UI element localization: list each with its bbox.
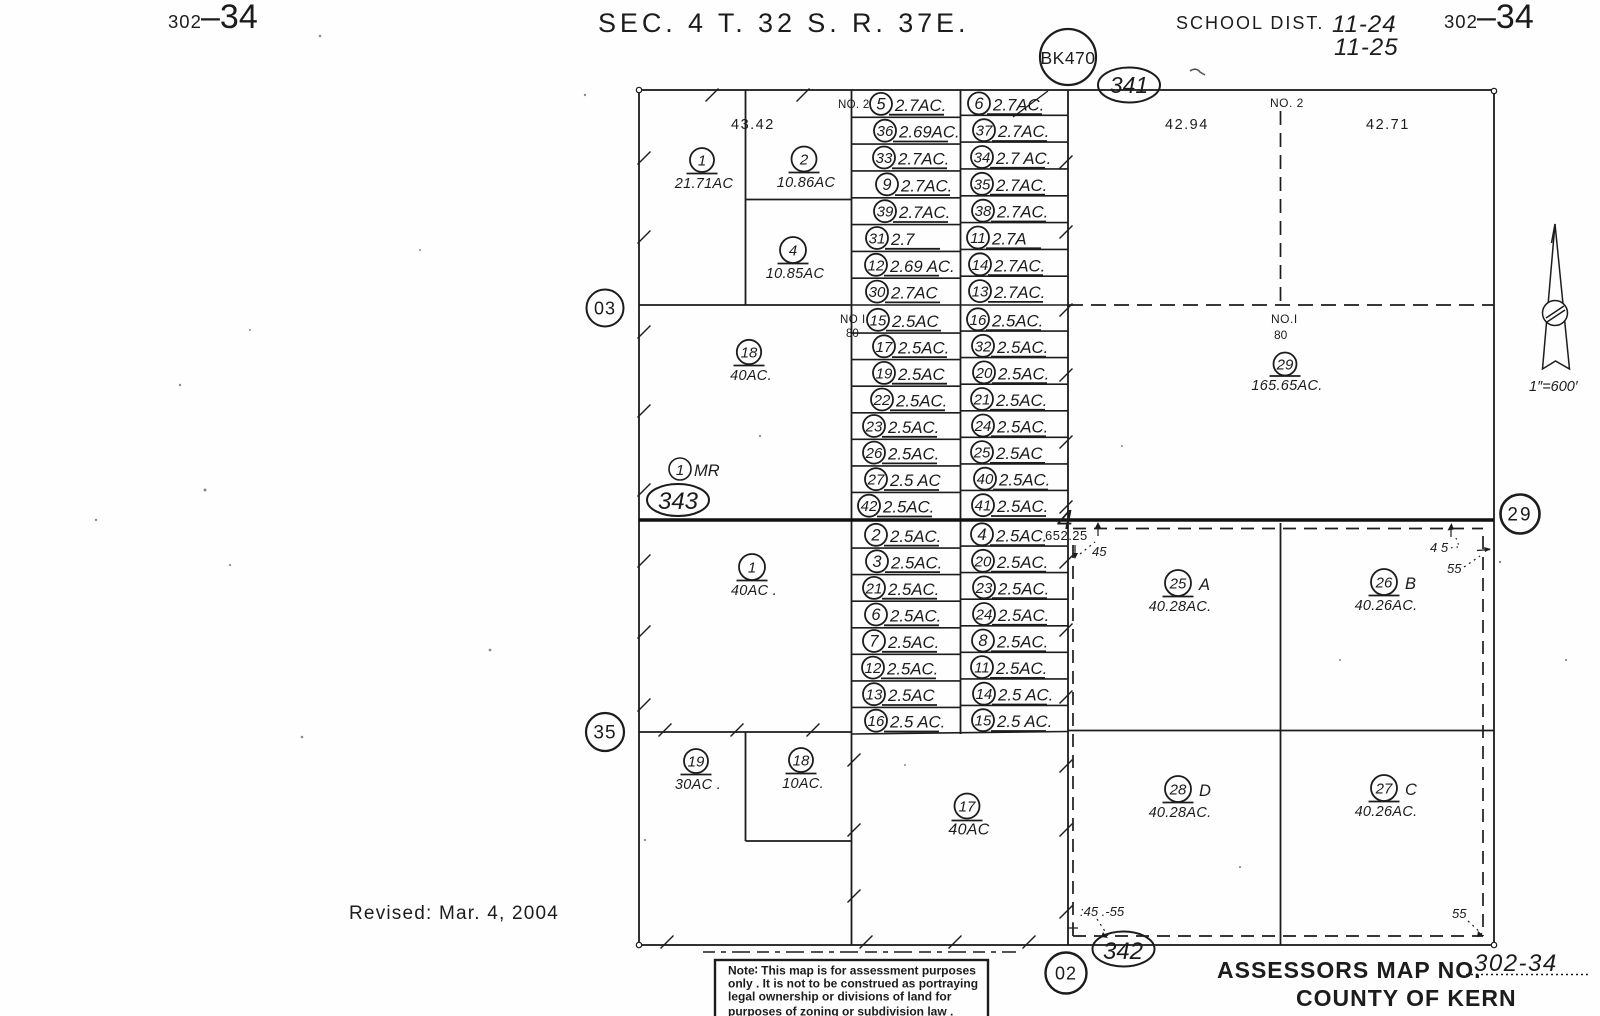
svg-text:2.5AC.: 2.5AC. bbox=[997, 364, 1049, 383]
svg-text:2.5AC.: 2.5AC. bbox=[882, 498, 934, 517]
svg-text:26: 26 bbox=[1375, 575, 1393, 592]
svg-text:35: 35 bbox=[974, 176, 991, 193]
svg-text:2.5AC.: 2.5AC. bbox=[996, 338, 1048, 357]
svg-text:2.7AC.: 2.7AC. bbox=[894, 96, 946, 115]
svg-text:4: 4 bbox=[977, 526, 986, 544]
svg-text:only . It is not to be constru: only . It is not to be construed as port… bbox=[728, 977, 978, 991]
svg-text:2.5AC.: 2.5AC. bbox=[996, 497, 1048, 516]
svg-text:4: 4 bbox=[789, 243, 797, 260]
svg-text:2.5AC.: 2.5AC. bbox=[887, 418, 939, 437]
svg-text:6: 6 bbox=[974, 95, 984, 113]
svg-text:03: 03 bbox=[594, 299, 616, 319]
svg-text:2.7AC.: 2.7AC. bbox=[995, 176, 1047, 195]
svg-text:42.71: 42.71 bbox=[1366, 117, 1410, 133]
svg-text:2.5AC.: 2.5AC. bbox=[995, 659, 1047, 678]
svg-text:2.5AC.: 2.5AC. bbox=[887, 580, 939, 599]
svg-text:43.42: 43.42 bbox=[731, 117, 775, 133]
svg-text:purposes of zoning or subdivis: purposes of zoning or subdivision law . bbox=[728, 1005, 953, 1016]
svg-text:1: 1 bbox=[698, 153, 706, 170]
svg-text:2.7A: 2.7A bbox=[991, 230, 1027, 249]
svg-text:12: 12 bbox=[865, 660, 882, 677]
svg-text:29: 29 bbox=[1276, 357, 1294, 374]
svg-text:B: B bbox=[1405, 575, 1416, 593]
svg-text:11-25: 11-25 bbox=[1334, 34, 1399, 61]
svg-text:9: 9 bbox=[882, 176, 891, 194]
svg-text:27: 27 bbox=[867, 472, 885, 489]
svg-text:341: 341 bbox=[1110, 72, 1148, 98]
svg-text:14: 14 bbox=[972, 257, 989, 274]
svg-text:2.5AC.: 2.5AC. bbox=[887, 633, 939, 652]
svg-text:15: 15 bbox=[870, 312, 887, 329]
svg-text:2: 2 bbox=[799, 152, 809, 169]
svg-text:42.94: 42.94 bbox=[1165, 117, 1209, 133]
svg-text:12: 12 bbox=[868, 257, 885, 274]
svg-text::45 .-55: :45 .-55 bbox=[1080, 904, 1125, 919]
svg-text:2.5AC: 2.5AC bbox=[891, 312, 940, 331]
svg-text:3: 3 bbox=[872, 553, 882, 571]
svg-text:D: D bbox=[1199, 782, 1211, 800]
svg-text:343: 343 bbox=[658, 488, 699, 515]
svg-text:40.26AC.: 40.26AC. bbox=[1355, 598, 1418, 614]
svg-text:2.5AC.: 2.5AC. bbox=[996, 553, 1048, 572]
svg-text:18: 18 bbox=[793, 753, 810, 770]
svg-text:55: 55 bbox=[1447, 561, 1462, 576]
svg-text:302: 302 bbox=[168, 11, 202, 32]
svg-text:25: 25 bbox=[973, 445, 991, 462]
svg-text:2.69 AC.: 2.69 AC. bbox=[889, 257, 955, 276]
svg-text:16: 16 bbox=[970, 312, 987, 329]
svg-text:30: 30 bbox=[869, 284, 886, 301]
svg-text:33: 33 bbox=[876, 150, 893, 167]
svg-text:45: 45 bbox=[1092, 544, 1107, 559]
svg-text:2.5AC: 2.5AC bbox=[995, 444, 1044, 463]
svg-text:23: 23 bbox=[975, 580, 993, 597]
svg-text:37: 37 bbox=[976, 123, 993, 140]
svg-text:13: 13 bbox=[972, 284, 989, 301]
svg-text:2.5 AC.: 2.5 AC. bbox=[996, 712, 1052, 731]
svg-text:32: 32 bbox=[975, 338, 992, 355]
svg-text:22: 22 bbox=[873, 392, 891, 409]
svg-text:40: 40 bbox=[977, 471, 994, 488]
svg-text:34: 34 bbox=[974, 150, 991, 167]
svg-text:8: 8 bbox=[978, 632, 988, 650]
svg-text:2.5AC.: 2.5AC. bbox=[995, 526, 1047, 545]
svg-text:39: 39 bbox=[877, 204, 894, 221]
svg-text:41: 41 bbox=[975, 498, 992, 515]
svg-text:28: 28 bbox=[1169, 782, 1187, 799]
svg-text:15: 15 bbox=[975, 713, 992, 730]
svg-text:2.5AC.: 2.5AC. bbox=[887, 445, 939, 464]
svg-text:80: 80 bbox=[846, 328, 859, 340]
svg-text:14: 14 bbox=[976, 686, 993, 703]
svg-text:2.5AC: 2.5AC bbox=[897, 365, 946, 384]
svg-text:5: 5 bbox=[876, 95, 886, 113]
svg-text:31: 31 bbox=[869, 231, 886, 248]
svg-text:35: 35 bbox=[593, 723, 616, 744]
svg-text:11: 11 bbox=[970, 230, 986, 247]
svg-text:2.5 AC.: 2.5 AC. bbox=[889, 713, 945, 732]
svg-text:2.5AC.: 2.5AC. bbox=[895, 392, 947, 411]
svg-text:80: 80 bbox=[1274, 328, 1288, 342]
svg-text:4 5: 4 5 bbox=[1430, 540, 1449, 555]
svg-text:17: 17 bbox=[876, 339, 893, 356]
svg-text:–34: –34 bbox=[1477, 0, 1534, 36]
svg-text:20: 20 bbox=[975, 365, 993, 382]
svg-text:NO I: NO I bbox=[840, 314, 866, 326]
svg-text:1: 1 bbox=[676, 462, 684, 479]
svg-text:24: 24 bbox=[975, 607, 993, 624]
svg-text:7: 7 bbox=[869, 633, 879, 651]
svg-text:21: 21 bbox=[973, 392, 991, 409]
svg-text:38: 38 bbox=[975, 203, 992, 220]
svg-text:25: 25 bbox=[1169, 576, 1187, 593]
svg-text:2.5AC.: 2.5AC. bbox=[996, 418, 1048, 437]
svg-text:55: 55 bbox=[1452, 906, 1467, 921]
svg-text:29: 29 bbox=[1507, 505, 1532, 526]
svg-text:2: 2 bbox=[870, 526, 880, 544]
svg-text:24: 24 bbox=[974, 418, 992, 435]
svg-text:10.86AC: 10.86AC bbox=[777, 175, 836, 191]
svg-text:NO. 2: NO. 2 bbox=[1270, 96, 1304, 110]
svg-text:10.85AC: 10.85AC bbox=[766, 266, 825, 282]
svg-text:2.5 AC: 2.5 AC bbox=[889, 471, 942, 490]
svg-text:10AC.: 10AC. bbox=[782, 776, 824, 792]
svg-text:SEC. 4 T. 32 S. R. 37E.: SEC. 4 T. 32 S. R. 37E. bbox=[598, 8, 969, 38]
svg-text:1″=600′: 1″=600′ bbox=[1529, 379, 1579, 395]
svg-text:2.5AC.: 2.5AC. bbox=[995, 391, 1047, 410]
svg-text:A: A bbox=[1198, 576, 1210, 594]
svg-text:MR: MR bbox=[694, 462, 720, 480]
svg-text:6: 6 bbox=[871, 606, 881, 624]
svg-text:36: 36 bbox=[877, 123, 894, 140]
svg-text:40.26AC.: 40.26AC. bbox=[1355, 804, 1418, 820]
svg-text:165.65AC.: 165.65AC. bbox=[1251, 378, 1322, 394]
svg-text:2.7: 2.7 bbox=[890, 230, 915, 249]
svg-text:19: 19 bbox=[876, 365, 893, 382]
svg-text:2.7 AC.: 2.7 AC. bbox=[995, 149, 1051, 168]
svg-text:2.5AC.: 2.5AC. bbox=[997, 579, 1049, 598]
svg-text:2.7AC.: 2.7AC. bbox=[992, 95, 1044, 114]
svg-text:Note∶ This map is for assessme: Note∶ This map is for assessment purpose… bbox=[728, 964, 976, 978]
svg-text:26: 26 bbox=[865, 445, 883, 462]
svg-text:30AC .: 30AC . bbox=[675, 777, 721, 793]
svg-text:2.7AC.: 2.7AC. bbox=[993, 256, 1045, 275]
svg-text:COUNTY OF KERN: COUNTY OF KERN bbox=[1296, 985, 1517, 1011]
svg-text:302: 302 bbox=[1444, 11, 1478, 32]
svg-text:2.7AC.: 2.7AC. bbox=[900, 176, 952, 195]
svg-text:40AC: 40AC bbox=[948, 822, 989, 839]
svg-text:2.7AC.: 2.7AC. bbox=[993, 283, 1045, 302]
svg-text:21.71AC: 21.71AC bbox=[674, 176, 734, 192]
svg-text:2.5AC.: 2.5AC. bbox=[889, 527, 941, 546]
svg-text:42: 42 bbox=[861, 498, 878, 515]
svg-text:2.5AC.: 2.5AC. bbox=[996, 633, 1048, 652]
svg-text:40.28AC.: 40.28AC. bbox=[1149, 805, 1212, 821]
svg-text:NO. 2: NO. 2 bbox=[838, 99, 870, 111]
svg-text:21: 21 bbox=[865, 580, 883, 597]
svg-text:2.7AC.: 2.7AC. bbox=[997, 122, 1049, 141]
svg-text:C: C bbox=[1405, 781, 1417, 799]
svg-text:ASSESSORS MAP NO.: ASSESSORS MAP NO. bbox=[1217, 957, 1482, 983]
svg-text:652.25: 652.25 bbox=[1045, 528, 1088, 543]
svg-text:BK470: BK470 bbox=[1040, 48, 1095, 68]
svg-text:2.5AC.: 2.5AC. bbox=[997, 606, 1049, 625]
svg-text:27: 27 bbox=[1375, 781, 1393, 798]
svg-text:40AC .: 40AC . bbox=[731, 583, 777, 599]
svg-text:legal ownership or divisions o: legal ownership or divisions of land for bbox=[728, 990, 952, 1004]
svg-text:2.5AC.: 2.5AC. bbox=[897, 338, 949, 357]
svg-text:23: 23 bbox=[865, 419, 883, 436]
svg-text:2.7AC.: 2.7AC. bbox=[996, 203, 1048, 222]
svg-text:2.5AC.: 2.5AC. bbox=[890, 553, 942, 572]
svg-text:SCHOOL DIST.: SCHOOL DIST. bbox=[1176, 13, 1324, 33]
svg-text:20: 20 bbox=[974, 553, 992, 570]
svg-text:2.7AC: 2.7AC bbox=[890, 284, 939, 303]
svg-text:2.5AC.: 2.5AC. bbox=[991, 311, 1043, 330]
svg-text:11: 11 bbox=[974, 660, 990, 677]
svg-text:2.7AC.: 2.7AC. bbox=[897, 150, 949, 169]
svg-text:2.5AC.: 2.5AC. bbox=[886, 660, 938, 679]
svg-text:18: 18 bbox=[741, 345, 758, 362]
svg-text:2.5AC.: 2.5AC. bbox=[998, 471, 1050, 490]
svg-text:13: 13 bbox=[866, 687, 883, 704]
svg-text:16: 16 bbox=[868, 713, 885, 730]
svg-text:2.7AC.: 2.7AC. bbox=[898, 203, 950, 222]
svg-text:302-34: 302-34 bbox=[1474, 950, 1558, 977]
svg-text:40AC.: 40AC. bbox=[730, 368, 772, 384]
svg-text:2.69AC.: 2.69AC. bbox=[898, 123, 960, 142]
svg-text:342: 342 bbox=[1103, 938, 1143, 965]
svg-text:–34: –34 bbox=[201, 0, 258, 36]
svg-text:02: 02 bbox=[1055, 964, 1077, 984]
svg-text:NO.I: NO.I bbox=[1271, 312, 1298, 326]
svg-text:Revised: Mar. 4, 2004: Revised: Mar. 4, 2004 bbox=[349, 903, 559, 924]
svg-text:2.5AC: 2.5AC bbox=[887, 686, 936, 705]
svg-text:1: 1 bbox=[748, 560, 756, 577]
svg-text:19: 19 bbox=[688, 754, 705, 771]
svg-text:17: 17 bbox=[959, 799, 976, 816]
svg-text:40.28AC.: 40.28AC. bbox=[1149, 599, 1212, 615]
svg-text:2.5 AC.: 2.5 AC. bbox=[997, 686, 1053, 705]
svg-text:2.5AC.: 2.5AC. bbox=[889, 607, 941, 626]
